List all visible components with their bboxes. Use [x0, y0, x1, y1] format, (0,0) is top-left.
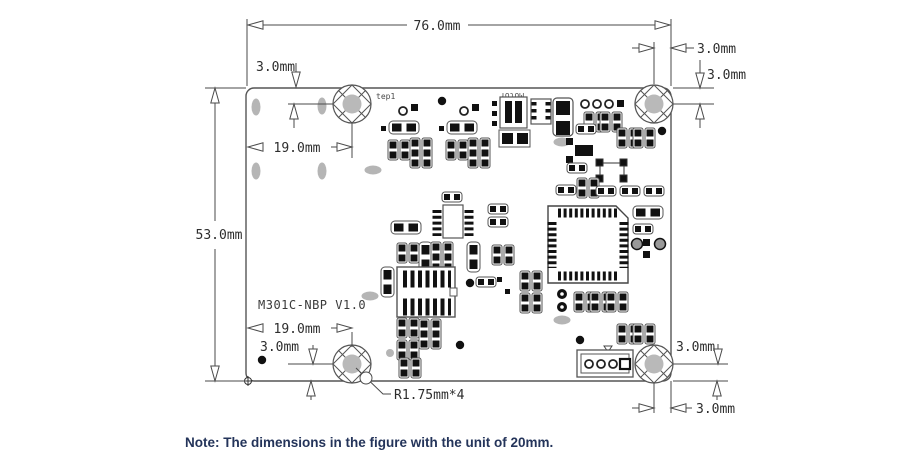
mounting-hole-top-left	[333, 85, 371, 123]
smd-resistor	[567, 163, 587, 173]
round-pad	[581, 100, 589, 108]
via	[466, 279, 474, 287]
square-pad	[566, 156, 573, 163]
smd-resistor	[596, 186, 616, 196]
via	[456, 341, 464, 349]
dim-board-height: 53.0mm	[196, 88, 246, 381]
qfp-main-chip	[548, 206, 628, 283]
dim-hole-tr-y: 3.0mm	[673, 60, 746, 128]
square-pad	[643, 251, 650, 258]
silkscreen-test-point-label: tep1	[376, 92, 395, 101]
mounting-hole-bottom-right	[635, 345, 673, 383]
pin-header-connector	[577, 346, 633, 377]
dim-label-hole-tr-y: 3.0mm	[707, 68, 746, 83]
square-pad	[472, 104, 479, 111]
square-pad	[411, 104, 418, 111]
dim-label-board-width: 76.0mm	[414, 19, 461, 34]
edge-pad	[318, 98, 327, 115]
via	[258, 356, 266, 364]
smd-pad-large	[575, 145, 593, 156]
smd-resistor	[389, 121, 419, 134]
pad	[386, 349, 394, 357]
via	[576, 336, 584, 344]
square-pad	[505, 289, 510, 294]
edge-pad	[252, 99, 261, 116]
round-pad	[460, 107, 468, 115]
edge-pad	[362, 292, 379, 301]
smd-resistor	[576, 124, 596, 134]
dim-board-width: 76.0mm	[247, 19, 671, 86]
pcb-dimension-drawing-page: tep1 Motor M301C-NBP V1.0	[0, 0, 924, 462]
round-pad	[593, 100, 601, 108]
smd-pads	[467, 242, 480, 272]
smd-resistor	[644, 186, 664, 196]
smd-resistor	[488, 217, 508, 227]
square-pad	[497, 277, 502, 282]
note-text: Note: The dimensions in the figure with …	[185, 435, 553, 450]
smd-resistor	[442, 192, 462, 202]
via	[438, 97, 446, 105]
smd-resistor	[556, 185, 576, 195]
dim-label-hole-radius: R1.75mm*4	[394, 388, 465, 403]
smd-resistor	[476, 277, 496, 287]
through-hole-pad	[557, 289, 567, 299]
dim-label-hole-tl-y: 3.0mm	[256, 60, 295, 75]
mounting-hole-top-right	[635, 85, 673, 123]
power-pads	[553, 98, 573, 136]
round-pad	[632, 239, 643, 250]
square-pad	[566, 138, 573, 145]
board-name-label: M301C-NBP V1.0	[258, 298, 366, 312]
dim-label-hole-tl-x: 19.0mm	[274, 141, 321, 156]
dim-label-hole-bl-y: 3.0mm	[260, 340, 299, 355]
dim-label-board-height: 53.0mm	[196, 228, 243, 243]
pcb-dimension-drawing: tep1 Motor M301C-NBP V1.0	[0, 0, 924, 462]
via	[658, 127, 666, 135]
smd-resistor	[620, 186, 640, 196]
soic8-chip	[531, 99, 551, 124]
dim-label-hole-tr-x: 3.0mm	[697, 42, 736, 57]
slot-connector	[397, 267, 457, 317]
round-pad	[605, 100, 613, 108]
smd-resistor	[633, 224, 653, 234]
square-pad	[643, 239, 650, 246]
edge-pad	[318, 163, 327, 180]
edge-pad	[252, 163, 261, 180]
dim-hole-br-y: 3.0mm	[673, 340, 728, 400]
square-pad	[439, 126, 444, 131]
round-pad	[655, 239, 666, 250]
through-hole-pad	[557, 302, 567, 312]
dim-label-hole-br-y: 3.0mm	[676, 340, 715, 355]
dim-label-hole-bl-x: 19.0mm	[274, 322, 321, 337]
square-pad	[617, 100, 624, 107]
round-pad	[399, 107, 407, 115]
smd-resistor	[391, 221, 421, 234]
smd-resistor	[488, 204, 508, 214]
dim-hole-br-x: 3.0mm	[632, 381, 735, 417]
smd-resistor	[633, 206, 663, 219]
square-pad	[381, 126, 386, 131]
edge-pad	[365, 166, 382, 175]
edge-pad	[554, 316, 571, 325]
dim-label-hole-br-x: 3.0mm	[696, 402, 735, 417]
smd-pads	[381, 267, 394, 297]
smd-resistor	[447, 121, 477, 134]
